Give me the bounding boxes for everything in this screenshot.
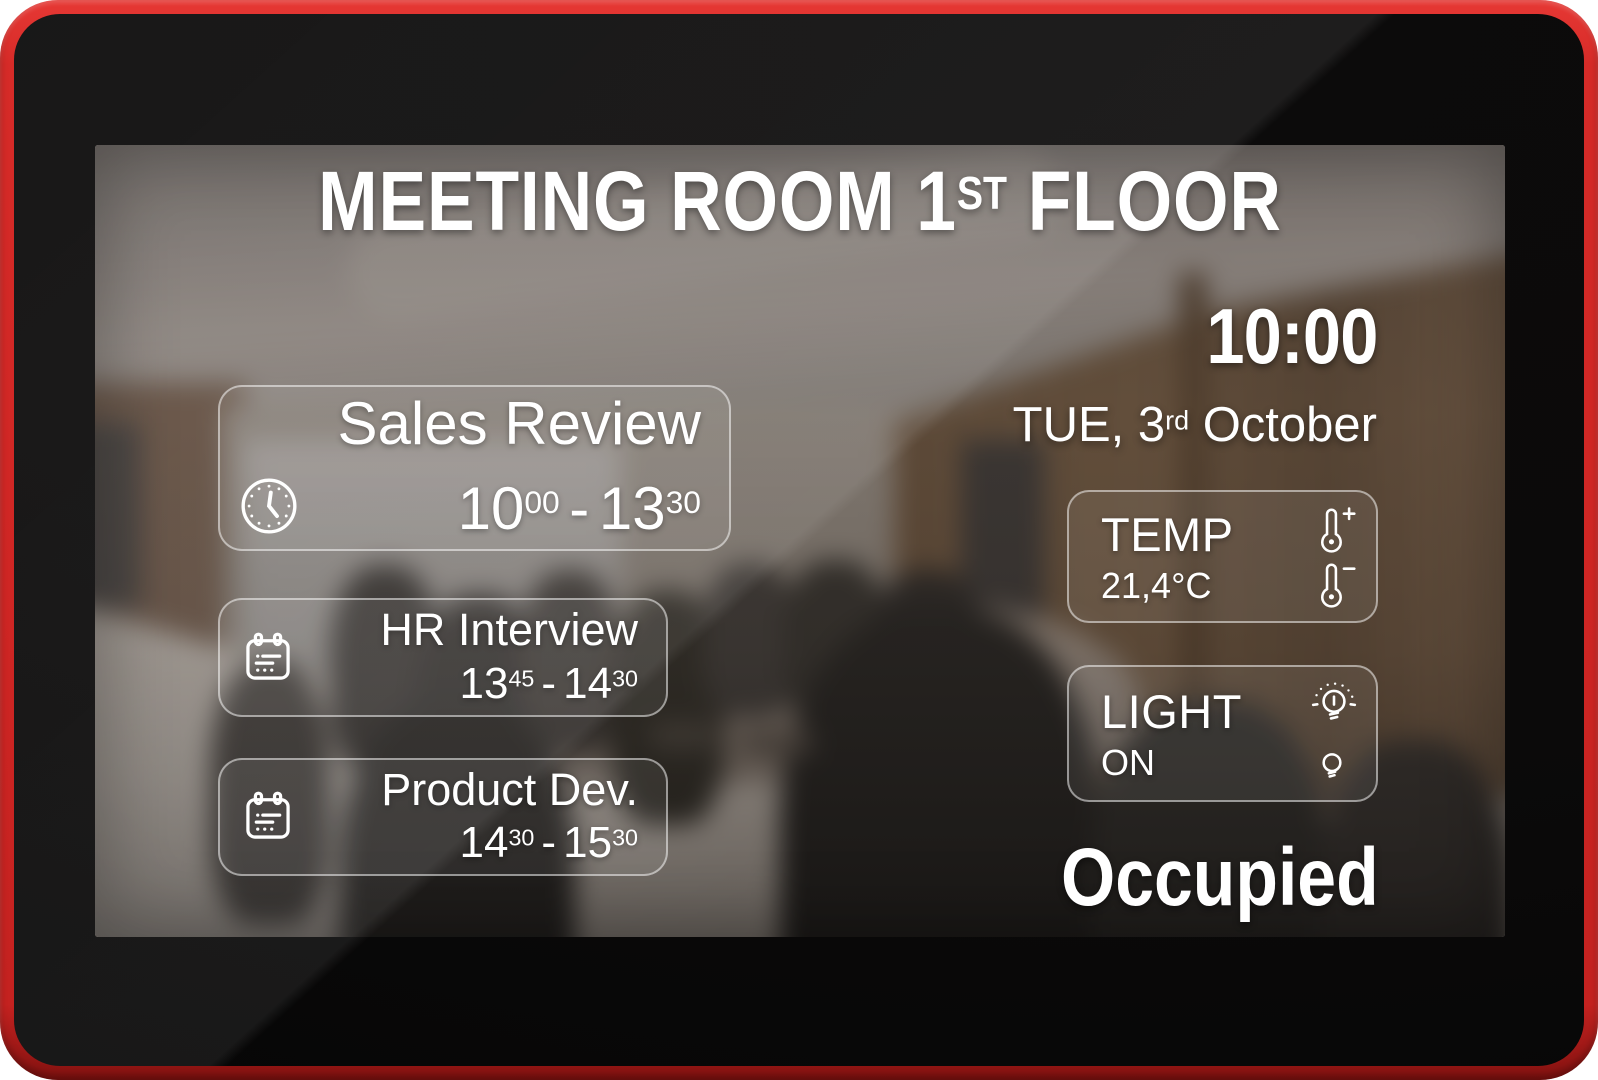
start-hour: 13 <box>460 659 509 708</box>
date-text: October <box>1189 398 1377 452</box>
end-hour: 15 <box>563 818 612 867</box>
time-separator: - <box>541 659 556 708</box>
room-panel-device: MEETING ROOM 1ST FLOOR 10:00 TUE, 3rd Oc… <box>0 0 1598 1080</box>
meeting-time: 1000-1330 <box>458 474 701 543</box>
end-minute: 30 <box>612 665 638 691</box>
date-superscript: rd <box>1165 406 1189 436</box>
temperature-card: TEMP 21,4°C <box>1067 490 1378 623</box>
calendar-icon <box>240 630 296 686</box>
screen: MEETING ROOM 1ST FLOOR 10:00 TUE, 3rd Oc… <box>95 145 1505 937</box>
end-minute: 30 <box>612 824 638 850</box>
bulb-on-icon[interactable] <box>1308 680 1360 732</box>
meeting-time: 1345-1430 <box>460 659 639 709</box>
start-minute: 30 <box>508 824 534 850</box>
meeting-time: 1430-1530 <box>460 818 639 868</box>
status-badge: Occupied <box>1061 831 1379 925</box>
bulb-off-icon[interactable] <box>1312 745 1352 787</box>
temp-label: TEMP <box>1101 507 1234 562</box>
light-card: LIGHT ON <box>1067 665 1378 802</box>
meeting-name: Sales Review <box>338 389 702 458</box>
time-separator: - <box>569 475 589 542</box>
title-text: MEETING ROOM 1 <box>318 154 957 248</box>
thermometer-plus-icon[interactable] <box>1310 505 1356 553</box>
end-hour: 13 <box>599 475 666 542</box>
meeting-card-hr-interview[interactable]: HR Interview 1345-1430 <box>218 598 668 717</box>
thermometer-minus-icon[interactable] <box>1310 560 1356 608</box>
end-hour: 14 <box>563 659 612 708</box>
meeting-card-sales-review[interactable]: Sales Review 1000-1330 <box>218 385 731 551</box>
light-label: LIGHT <box>1101 684 1242 739</box>
meeting-name: Product Dev. <box>381 764 638 816</box>
start-minute: 00 <box>524 484 559 520</box>
page-title: MEETING ROOM 1ST FLOOR <box>201 153 1400 250</box>
clock-date: TUE, 3rd October <box>1013 397 1377 453</box>
title-superscript: ST <box>957 167 1007 219</box>
temp-value: 21,4°C <box>1101 565 1234 607</box>
clock-time: 10:00 <box>1206 291 1377 382</box>
start-hour: 10 <box>458 475 525 542</box>
end-minute: 30 <box>666 484 701 520</box>
start-hour: 14 <box>460 818 509 867</box>
time-separator: - <box>541 818 556 867</box>
calendar-icon <box>240 789 296 845</box>
date-text: TUE, 3 <box>1013 398 1165 452</box>
meeting-card-product-dev[interactable]: Product Dev. 1430-1530 <box>218 758 668 876</box>
temperature-text: TEMP 21,4°C <box>1101 507 1234 607</box>
title-text: FLOOR <box>1007 154 1282 248</box>
clock-icon <box>238 475 300 537</box>
start-minute: 45 <box>508 665 534 691</box>
light-value: ON <box>1101 742 1242 784</box>
light-text: LIGHT ON <box>1101 684 1242 784</box>
meeting-name: HR Interview <box>380 604 638 656</box>
